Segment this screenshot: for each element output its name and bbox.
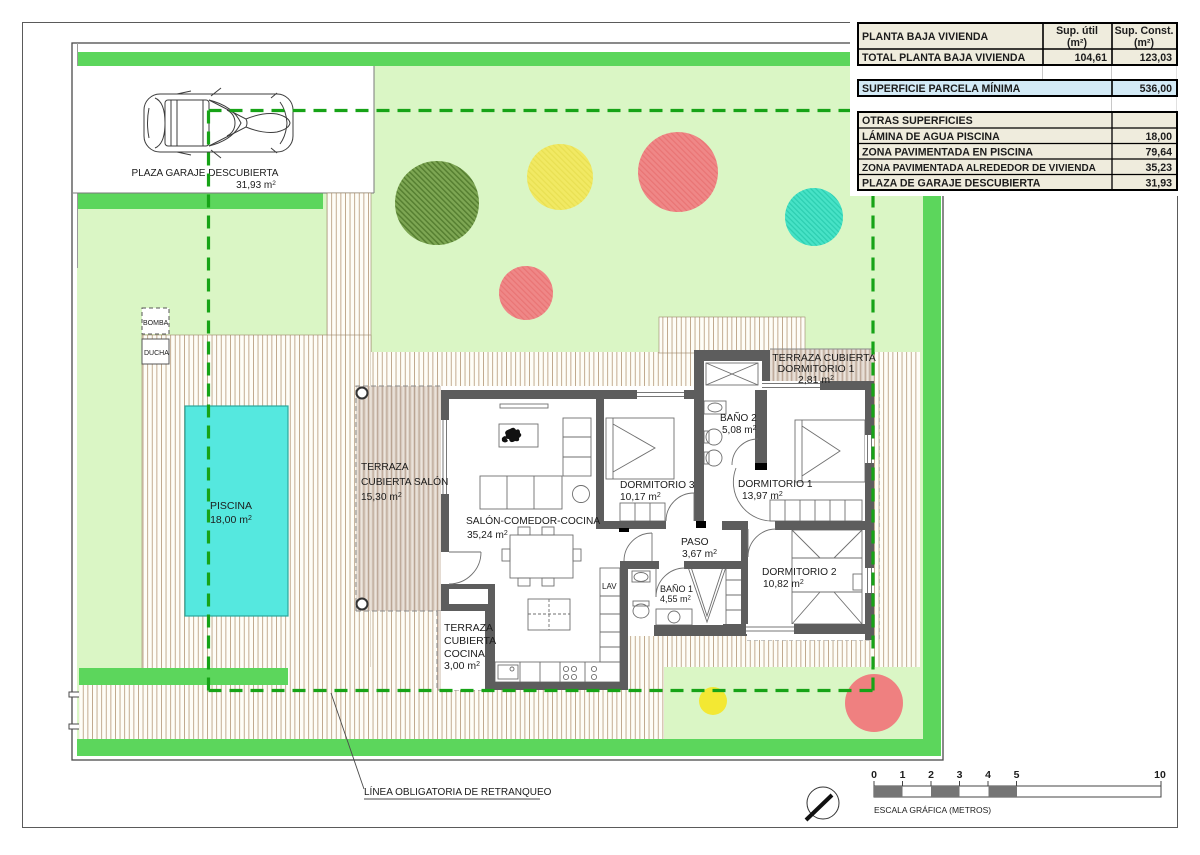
svg-text:13,97 m2: 13,97 m2 — [742, 491, 783, 502]
svg-text:SUPERFICIE PARCELA MÍNIMA: SUPERFICIE PARCELA MÍNIMA — [862, 82, 1021, 95]
svg-text:LAV: LAV — [602, 582, 617, 591]
svg-text:(m²): (m²) — [1067, 37, 1087, 49]
svg-text:123,03: 123,03 — [1140, 52, 1173, 64]
svg-text:TERRAZA: TERRAZA — [361, 462, 409, 473]
svg-text:3: 3 — [957, 769, 963, 781]
svg-text:DORMITORIO 2: DORMITORIO 2 — [762, 567, 837, 578]
svg-text:PLAZA DE GARAJE DESCUBIERTA: PLAZA DE GARAJE DESCUBIERTA — [862, 178, 1041, 190]
svg-text:10: 10 — [1154, 769, 1166, 781]
svg-text:(m²): (m²) — [1134, 37, 1154, 49]
svg-text:536,00: 536,00 — [1140, 83, 1173, 95]
svg-text:PLANTA BAJA VIVIENDA: PLANTA BAJA VIVIENDA — [862, 31, 989, 43]
svg-text:SALÓN-COMEDOR-COCINA: SALÓN-COMEDOR-COCINA — [466, 514, 600, 527]
svg-text:2: 2 — [928, 769, 934, 781]
svg-text:DORMITORIO 3: DORMITORIO 3 — [620, 480, 695, 491]
svg-text:3,67 m2: 3,67 m2 — [682, 549, 717, 560]
svg-text:4,55 m2: 4,55 m2 — [660, 594, 692, 604]
svg-text:DUCHA: DUCHA — [144, 350, 169, 357]
svg-text:5: 5 — [1014, 769, 1020, 781]
svg-text:BOMBA: BOMBA — [143, 320, 169, 327]
svg-text:ESCALA GRÁFICA (METROS): ESCALA GRÁFICA (METROS) — [874, 805, 991, 815]
svg-text:OTRAS SUPERFICIES: OTRAS SUPERFICIES — [862, 115, 973, 127]
svg-text:3,00 m2: 3,00 m2 — [444, 660, 480, 672]
svg-text:BAÑO 2: BAÑO 2 — [720, 411, 757, 424]
svg-text:104,61: 104,61 — [1075, 52, 1108, 64]
svg-text:COCINA: COCINA — [444, 648, 485, 660]
svg-text:ZONA PAVIMENTADA ALREDEDOR DE: ZONA PAVIMENTADA ALREDEDOR DE VIVIENDA — [862, 163, 1096, 174]
svg-text:35,23: 35,23 — [1145, 162, 1172, 174]
svg-text:18,00 m2: 18,00 m2 — [210, 514, 252, 526]
svg-text:15,30 m2: 15,30 m2 — [361, 492, 402, 503]
svg-text:ZONA PAVIMENTADA EN PISCINA: ZONA PAVIMENTADA EN PISCINA — [862, 147, 1033, 159]
svg-text:31,93 m2: 31,93 m2 — [236, 180, 276, 191]
svg-text:PLAZA GARAJE DESCUBIERTA: PLAZA GARAJE DESCUBIERTA — [132, 168, 279, 179]
svg-text:79,64: 79,64 — [1145, 147, 1172, 159]
svg-text:TERRAZA: TERRAZA — [444, 622, 493, 634]
svg-text:CUBIERTA: CUBIERTA — [444, 635, 496, 647]
svg-text:0: 0 — [871, 769, 877, 781]
svg-text:CUBIERTA SALÓN: CUBIERTA SALÓN — [361, 475, 448, 488]
svg-text:PASO: PASO — [681, 537, 709, 548]
svg-text:TOTAL PLANTA BAJA VIVIENDA: TOTAL PLANTA BAJA VIVIENDA — [862, 52, 1026, 64]
svg-text:5,08 m2: 5,08 m2 — [722, 425, 757, 436]
svg-text:18,00: 18,00 — [1145, 131, 1172, 143]
svg-text:10,17 m2: 10,17 m2 — [620, 492, 661, 503]
svg-text:Sup. útil: Sup. útil — [1056, 25, 1098, 37]
svg-text:LÍNEA OBLIGATORIA DE RETRANQUE: LÍNEA OBLIGATORIA DE RETRANQUEO — [364, 785, 552, 798]
svg-text:LÁMINA DE AGUA PISCINA: LÁMINA DE AGUA PISCINA — [862, 130, 1000, 143]
svg-text:Sup. Const.: Sup. Const. — [1115, 25, 1174, 37]
svg-text:31,93: 31,93 — [1145, 178, 1172, 190]
svg-text:10,82 m2: 10,82 m2 — [763, 579, 804, 590]
svg-text:35,24 m2: 35,24 m2 — [467, 530, 508, 541]
svg-text:DORMITORIO 1: DORMITORIO 1 — [738, 479, 813, 490]
svg-text:1: 1 — [900, 769, 906, 781]
svg-text:4: 4 — [985, 769, 991, 781]
svg-text:PISCINA: PISCINA — [210, 500, 252, 512]
svg-text:2,81 m2: 2,81 m2 — [798, 374, 834, 386]
svg-text:BAÑO 1: BAÑO 1 — [660, 584, 693, 594]
